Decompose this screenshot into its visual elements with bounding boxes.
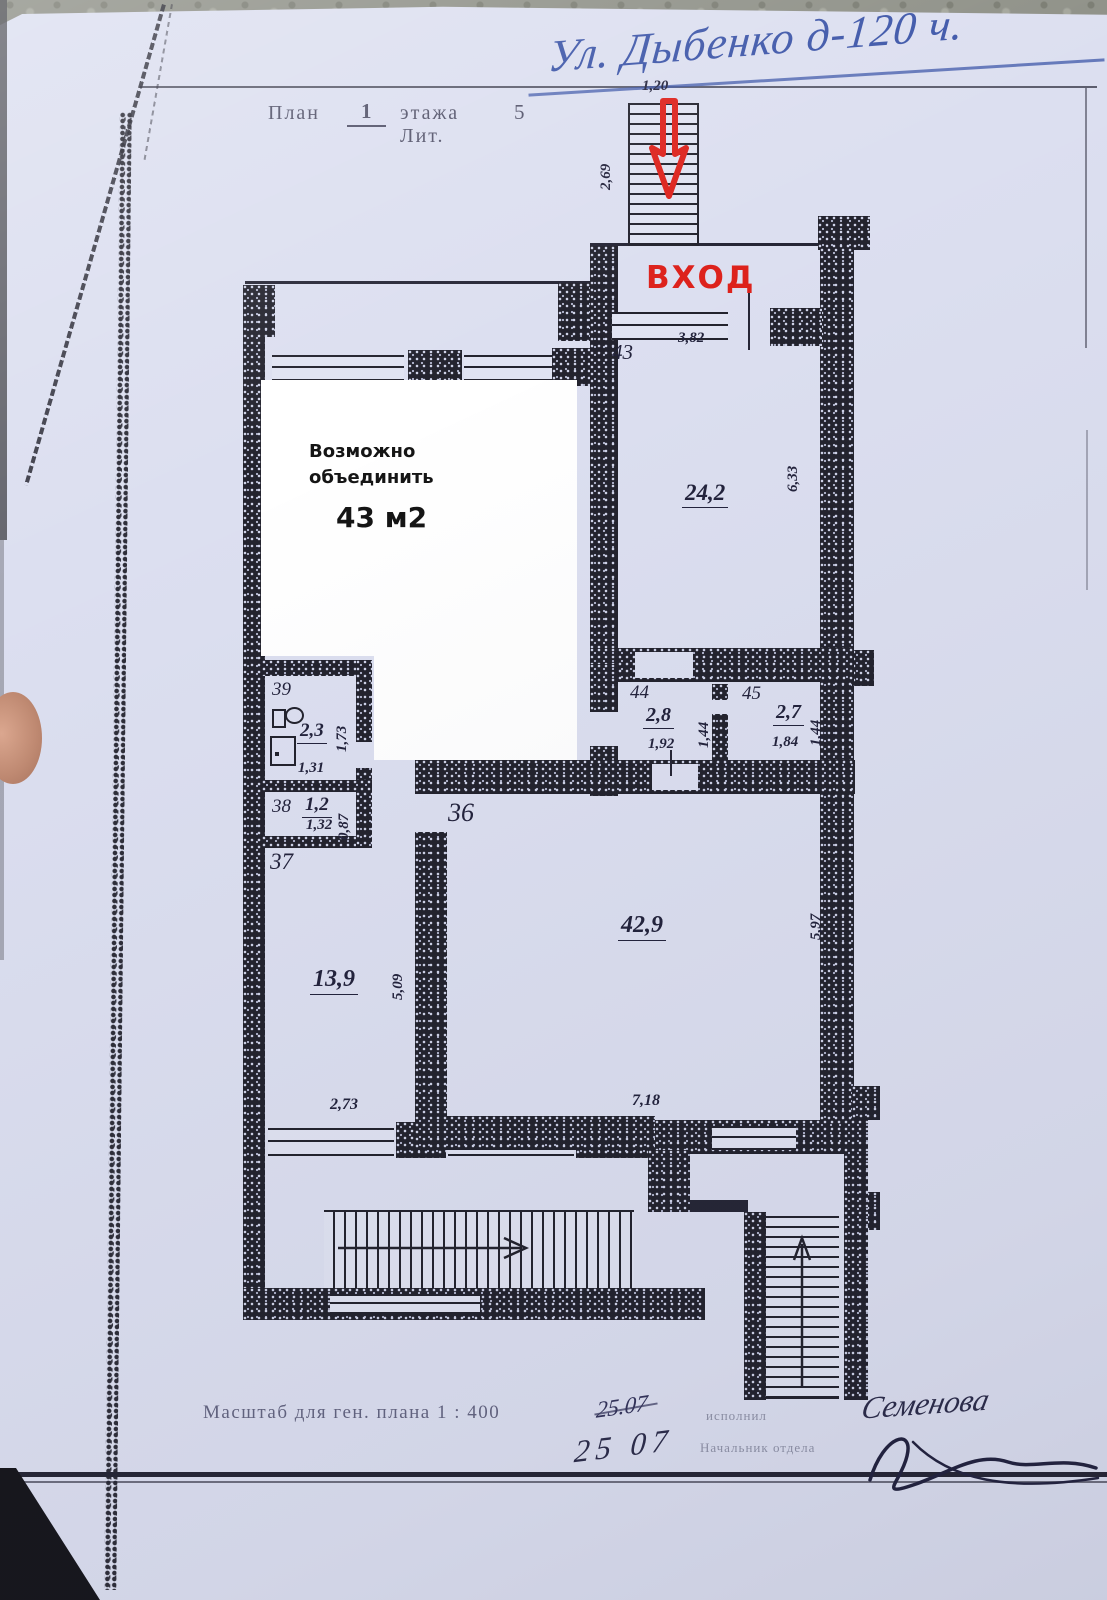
room-36-dim-w: 7,18: [632, 1092, 660, 1110]
sink-drain-dot: [275, 752, 279, 756]
wall: [820, 248, 854, 1148]
sink-icon: [270, 736, 296, 766]
plan-title-word: План: [268, 102, 320, 125]
room-43-area: 24,2: [682, 480, 728, 508]
room-37-area: 13,9: [310, 966, 358, 995]
wall-pilaster: [852, 1086, 880, 1120]
door-opening: [712, 700, 728, 714]
scale-note: Масштаб для ген. плана 1 : 400: [203, 1402, 500, 1424]
wall: [262, 780, 372, 792]
overlay-area-value: 43 м2: [336, 501, 427, 534]
wall: [648, 1150, 690, 1212]
room-45-number: 45: [742, 683, 761, 705]
room-36-area: 42,9: [618, 912, 666, 941]
room-44-dim-h: 1,44: [696, 698, 713, 748]
room-39-number: 39: [272, 679, 291, 701]
role-executor: исполнил: [706, 1408, 767, 1424]
frame-right-line: [1085, 88, 1087, 348]
entrance-stair-depth: 2,69: [598, 138, 615, 190]
wall: [415, 1116, 655, 1150]
left-stair-arrow-icon: [334, 1234, 534, 1262]
room-44-area: 2,8: [643, 704, 674, 729]
role-department-head: Начальник отдела: [700, 1440, 815, 1456]
wall: [770, 308, 822, 346]
photo-left-edge: [0, 0, 7, 540]
door-opening: [635, 652, 693, 678]
white-overlay-box-lower: [374, 655, 577, 760]
entrance-arrow-icon: [646, 98, 692, 202]
wall-line: [690, 1200, 748, 1212]
photographed-floor-plan: Ул. Дыбенко д-120 ч. План 1 этажа Лит. 5: [0, 0, 1107, 1600]
wall: [590, 664, 618, 712]
room-37-dim-h: 5,09: [390, 944, 407, 1000]
right-stair-arrow-icon: [790, 1232, 814, 1392]
plan-title-lit: 5: [514, 100, 525, 125]
toilet-icon: [272, 709, 286, 728]
door-swing-line: [748, 288, 750, 350]
dimension-tick: [670, 750, 672, 776]
frame-right-line-2: [1086, 430, 1088, 590]
window: [268, 1128, 394, 1156]
room-39-dim-w: 1,31: [298, 760, 324, 777]
room-38-area: 1,2: [302, 794, 332, 818]
room-44-dim-w: 1,92: [648, 736, 674, 753]
paper-sheet: [0, 6, 1107, 1600]
room-45-dim-w: 1,84: [772, 734, 798, 751]
entrance-stair-width: 1,20: [642, 78, 668, 95]
overlay-note-line1: Возможно: [309, 441, 415, 462]
room-37-number: 37: [270, 849, 293, 875]
entrance-label: ВХОД: [646, 260, 756, 296]
plan-title-suffix: этажа Лит.: [400, 102, 459, 148]
room-45-area: 2,7: [773, 701, 804, 726]
window: [612, 312, 728, 340]
room-39-area: 2,3: [297, 720, 327, 744]
room-36-dim-h: 5,97: [808, 882, 825, 940]
overlay-note-line2: объединить: [309, 467, 434, 488]
signature-2: [858, 1422, 1103, 1502]
room-38-dim-w: 1,32: [306, 817, 332, 834]
room-43-dim-right: 6,33: [785, 434, 802, 492]
room-39-dim-h: 1,73: [334, 704, 351, 752]
wall: [558, 283, 594, 341]
wall: [356, 792, 372, 848]
room-38-dim-h: 0,87: [336, 794, 353, 840]
wall-pilaster: [852, 650, 874, 686]
room-43-dim-top: 3,82: [678, 330, 704, 347]
room-45-dim-h: 1,44: [808, 696, 825, 746]
door-opening: [652, 764, 698, 790]
plan-title-floor: 1: [347, 99, 386, 127]
room-37-dim-w: 2,73: [330, 1096, 358, 1114]
room-38-number: 38: [272, 796, 291, 818]
wall-partition: [712, 684, 728, 764]
wall: [844, 1148, 868, 1400]
window: [464, 355, 554, 381]
wall: [415, 760, 855, 794]
door-opening: [356, 742, 372, 768]
room-36-number: 36: [448, 798, 474, 828]
room-43-number: 43: [612, 340, 633, 365]
window: [330, 1294, 480, 1314]
window: [712, 1126, 796, 1150]
wall: [356, 660, 372, 792]
wall: [590, 246, 618, 664]
room-44-number: 44: [630, 682, 649, 704]
wall: [818, 216, 870, 250]
wall: [408, 350, 462, 384]
window: [272, 355, 404, 381]
wall-line: [590, 243, 632, 246]
wall: [243, 285, 275, 337]
door-opening: [415, 794, 447, 832]
wall-line: [698, 243, 820, 246]
wall-line: [245, 281, 593, 284]
wall: [590, 648, 854, 682]
wall: [744, 1212, 766, 1400]
